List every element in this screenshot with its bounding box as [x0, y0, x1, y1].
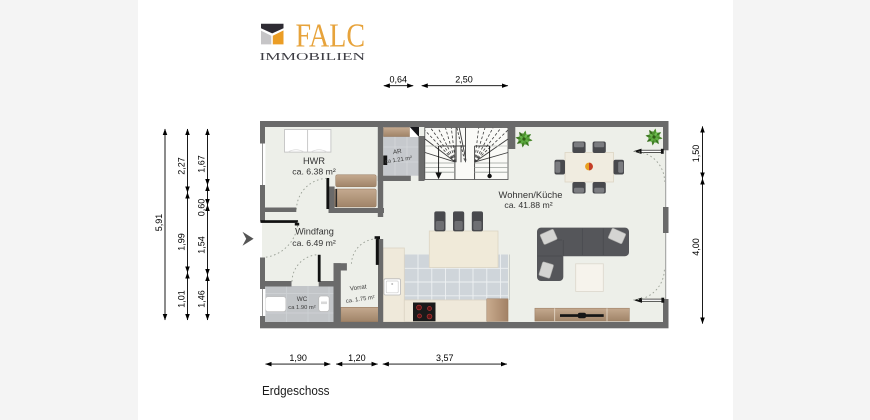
svg-text:1,67: 1,67 [197, 155, 207, 173]
svg-text:2,27: 2,27 [177, 157, 187, 175]
svg-text:HWR: HWR [303, 156, 325, 166]
svg-text:4,00: 4,00 [691, 238, 701, 256]
svg-text:WC: WC [297, 296, 308, 303]
svg-text:1,46: 1,46 [197, 290, 207, 308]
svg-text:1,50: 1,50 [691, 145, 701, 163]
svg-text:3,57: 3,57 [436, 353, 454, 363]
svg-text:Wohnen/Küche: Wohnen/Küche [499, 189, 563, 200]
svg-text:0,64: 0,64 [390, 75, 408, 85]
svg-text:1,90: 1,90 [289, 353, 307, 363]
svg-text:ca. 41.88 m²: ca. 41.88 m² [504, 200, 552, 210]
svg-text:0,60: 0,60 [197, 199, 207, 217]
svg-text:Windfang: Windfang [295, 226, 334, 236]
svg-text:AR: AR [393, 148, 403, 156]
svg-text:5,91: 5,91 [154, 214, 164, 232]
svg-text:ca 1.90 m²: ca 1.90 m² [288, 305, 315, 311]
svg-text:1,01: 1,01 [177, 290, 187, 308]
svg-text:ca. 6.49 m²: ca. 6.49 m² [292, 238, 336, 248]
svg-text:IMMOBILIEN: IMMOBILIEN [260, 51, 366, 63]
svg-text:ca. 6.38 m²: ca. 6.38 m² [292, 166, 336, 176]
svg-text:2,50: 2,50 [455, 75, 473, 85]
svg-text:1,20: 1,20 [348, 353, 366, 363]
svg-text:1,99: 1,99 [177, 233, 187, 251]
svg-text:Erdgeschoss: Erdgeschoss [262, 383, 330, 398]
svg-text:FALC: FALC [296, 18, 366, 55]
svg-text:1,54: 1,54 [197, 236, 207, 254]
